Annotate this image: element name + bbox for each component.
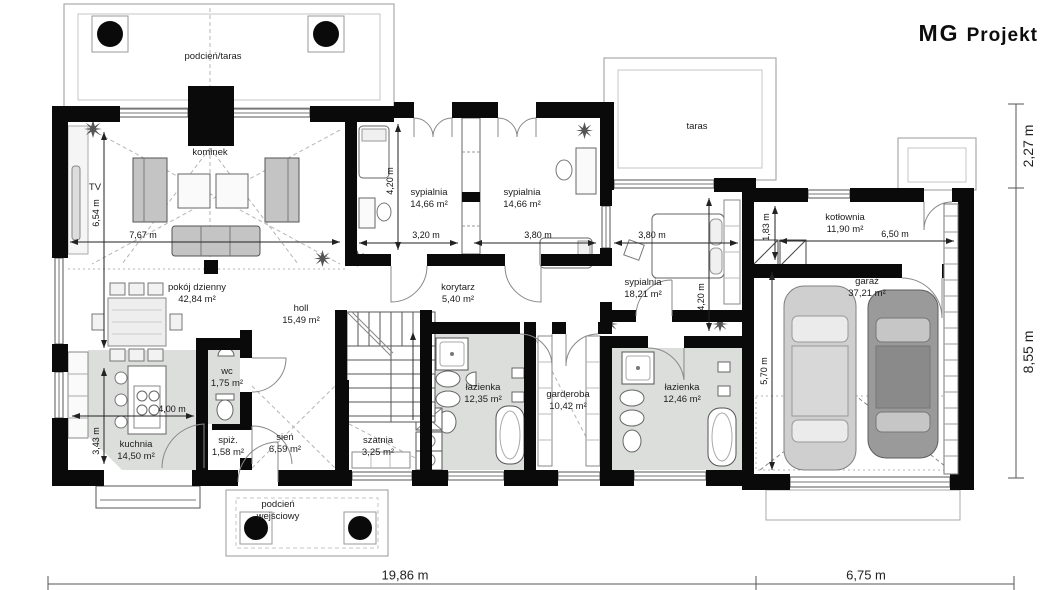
taras-outline: [604, 58, 776, 180]
room-label-sypialnia-2: sypialnia14,66 m²: [503, 187, 541, 211]
dim-3-80-b: 3,80 m: [638, 230, 666, 240]
brand-logo-mg: MG: [919, 20, 960, 46]
washbasin-icon: [436, 371, 460, 387]
sofa-icon: [265, 158, 299, 222]
wardrobe-icon: [462, 118, 480, 254]
door-arc: [391, 266, 427, 302]
dim-3-20: 3,20 m: [412, 230, 440, 240]
desk-icon: [359, 198, 375, 228]
room-label-wc: wc1,75 m²: [211, 366, 243, 390]
room-label-pokoj-dzienny: pokój dzienny42,84 m²: [168, 282, 226, 306]
garage-apron: [766, 490, 960, 520]
brand-logo: MGProjekt: [919, 20, 1038, 47]
plant-icon: [576, 122, 593, 139]
room-label-garaz: garaż37,21 m²: [848, 276, 886, 300]
column-icon: [313, 21, 339, 47]
stool-icon: [115, 394, 127, 406]
column-icon: [97, 21, 123, 47]
door-arc: [252, 358, 286, 392]
radiator-icon: [718, 362, 730, 372]
radiator-icon: [512, 392, 524, 402]
room-label-szatnia: szatnia3,25 m²: [362, 435, 394, 459]
couch-icon: [172, 226, 260, 256]
room-label-sypialnia-3: sypialnia18,21 m²: [624, 277, 662, 301]
pillow-icon: [710, 219, 722, 245]
dim-5-70: 5,70 m: [759, 357, 769, 385]
radiator-icon: [718, 386, 730, 396]
dim-4-20-b: 4,20 m: [696, 283, 706, 311]
dim-6-50: 6,50 m: [881, 229, 909, 239]
dim-6-75: 6,75 m: [846, 568, 886, 583]
desk-icon: [576, 148, 596, 194]
door-arc: [498, 118, 517, 137]
dim-1-83: 1,83 m: [761, 213, 771, 241]
room-label-sien: sień6,59 m²: [269, 432, 301, 456]
dim-3-80-a: 3,80 m: [524, 230, 552, 240]
dim-7-67: 7,67 m: [129, 230, 157, 240]
column-icon: [348, 516, 372, 540]
room-label-spiz: spiż.1,58 m²: [212, 435, 244, 459]
room-label-sypialnia-1: sypialnia14,66 m²: [410, 187, 448, 211]
tv-icon: [72, 166, 80, 240]
room-label-lazienka-2: łazienka12,46 m²: [663, 382, 701, 406]
dim-4-20-a: 4,20 m: [385, 167, 395, 195]
washbasin-icon: [436, 391, 460, 407]
plan-drawing: [0, 0, 1060, 590]
fireplace-block: [188, 86, 234, 146]
room-label-garderoba: garderoba10,42 m²: [546, 389, 589, 413]
door-arc: [414, 118, 433, 137]
door-arc: [517, 118, 536, 137]
dim-3-43: 3,43 m: [91, 427, 101, 455]
plant-icon: [314, 250, 331, 267]
brand-logo-projekt: Projekt: [967, 25, 1038, 46]
washbasin-icon: [620, 410, 644, 426]
room-label-kominek: kominek: [192, 147, 227, 159]
floor-plan: podcień/taras kominek TV pokój dzienny42…: [0, 0, 1060, 590]
toilet-icon: [623, 430, 641, 452]
car-icon: [868, 290, 938, 458]
room-label-lazienka-1: łazienka12,35 m²: [464, 382, 502, 406]
room-label-podcien-wejsciowy: podcieńwejściowy: [257, 499, 300, 523]
room-label-podcien-taras: podcień/taras: [184, 51, 241, 63]
pillow-icon: [362, 129, 386, 141]
car-icon: [784, 286, 856, 470]
door-arc: [505, 266, 541, 302]
room-label-korytarz: korytarz5,40 m²: [441, 282, 475, 306]
room-label-taras: taras: [686, 121, 707, 133]
dim-8-55: 8,55 m: [1020, 331, 1036, 374]
coffee-table-icon: [216, 174, 248, 208]
room-label-kuchnia: kuchnia14,50 m²: [117, 439, 155, 463]
door-arc: [433, 118, 452, 137]
chair-icon: [556, 160, 572, 180]
washbasin-icon: [620, 390, 644, 406]
dim-4-00: 4,00 m: [158, 404, 186, 414]
toilet-icon: [217, 400, 233, 420]
stool-icon: [115, 416, 127, 428]
room-label-tv: TV: [89, 182, 101, 194]
radiator-icon: [512, 368, 524, 378]
bay-window: [96, 486, 200, 508]
coffee-table-icon: [178, 174, 210, 208]
dim-19-86: 19,86 m: [382, 568, 429, 583]
kitchen-counter-icon: [68, 352, 88, 438]
room-label-holl: holl15,49 m²: [282, 303, 320, 327]
sofa-icon: [133, 158, 167, 222]
dim-2-27: 2,27 m: [1020, 125, 1036, 168]
pillow-icon: [710, 248, 722, 274]
stool-icon: [115, 372, 127, 384]
room-label-kotlownia: kotłownia11,90 m²: [825, 212, 865, 236]
wall-section-strip: [944, 204, 958, 474]
dim-6-54: 6,54 m: [91, 199, 101, 227]
column-pier: [204, 260, 218, 274]
chair-icon: [377, 203, 391, 221]
